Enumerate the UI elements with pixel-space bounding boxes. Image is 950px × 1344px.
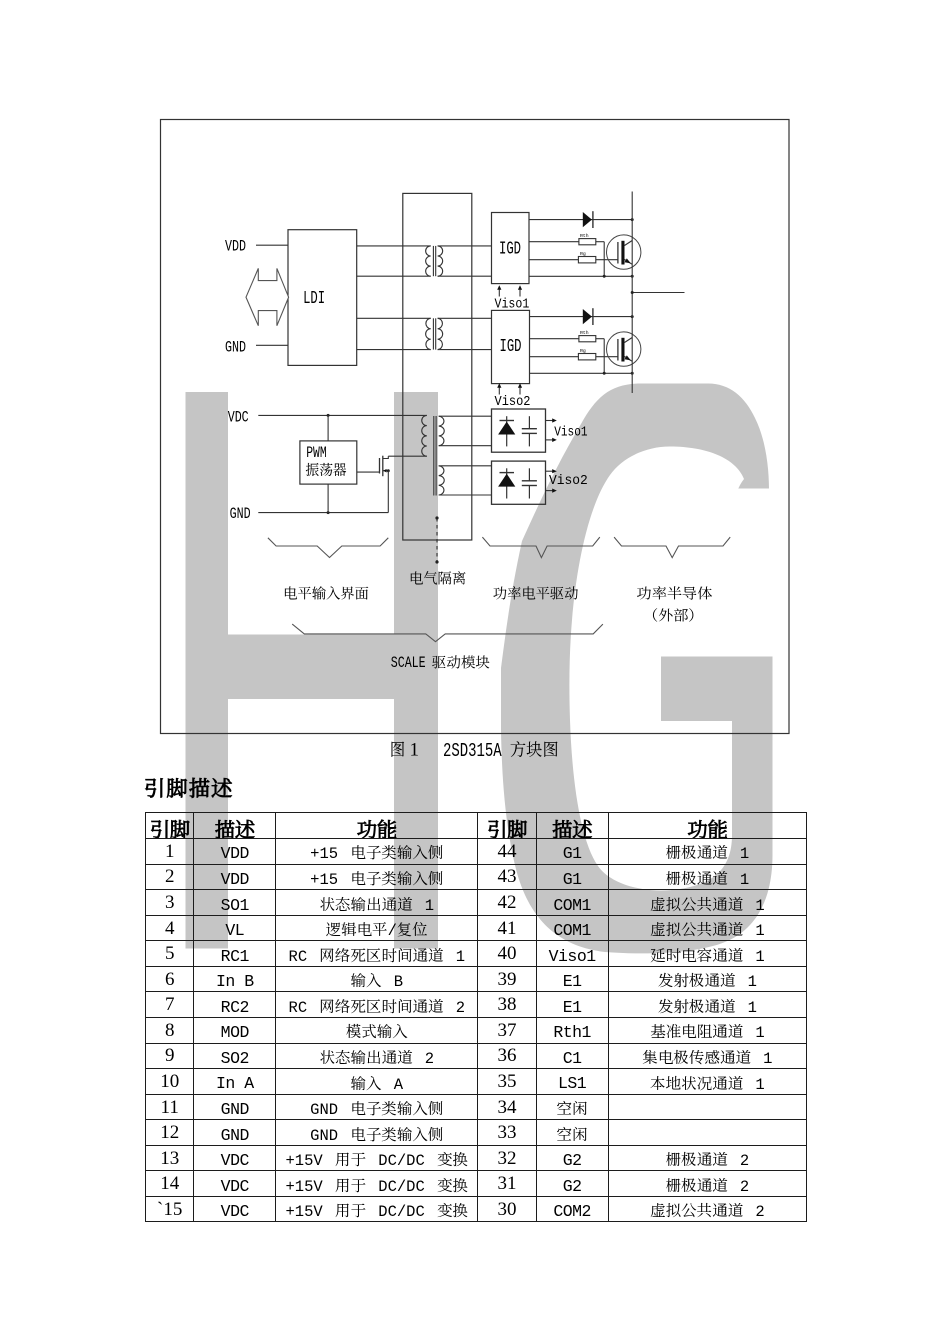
svg-text:2SD315A: 2SD315A <box>443 740 502 762</box>
svg-text:SCALE: SCALE <box>391 654 426 672</box>
svg-text:Rg: Rg <box>580 348 586 354</box>
svg-text:GND: GND <box>225 338 246 356</box>
svg-text:Viso1: Viso1 <box>495 297 530 313</box>
svg-text:Rth: Rth <box>580 330 589 336</box>
svg-text:Viso2: Viso2 <box>549 473 588 489</box>
svg-text:Rg: Rg <box>580 251 586 257</box>
svg-text:（外部）: （外部） <box>643 605 703 626</box>
svg-text:Rth: Rth <box>580 233 589 239</box>
svg-text:电气隔离: 电气隔离 <box>409 568 467 589</box>
svg-text:振荡器: 振荡器 <box>306 459 347 480</box>
svg-text:电平输入界面: 电平输入界面 <box>283 583 370 604</box>
svg-text:LDI: LDI <box>303 288 325 309</box>
svg-text:1: 1 <box>410 740 420 761</box>
svg-text:功率半导体: 功率半导体 <box>636 583 712 604</box>
svg-text:VDC: VDC <box>228 409 249 427</box>
svg-text:驱动模块: 驱动模块 <box>432 652 491 673</box>
svg-text:GND: GND <box>230 505 251 523</box>
svg-text:Viso2: Viso2 <box>495 394 531 410</box>
svg-text:功率电平驱动: 功率电平驱动 <box>493 583 579 604</box>
svg-text:Viso1: Viso1 <box>554 424 587 440</box>
svg-text:图: 图 <box>390 735 406 760</box>
svg-text:方块图: 方块图 <box>510 735 559 760</box>
svg-text:IGD: IGD <box>499 238 521 259</box>
svg-text:IGD: IGD <box>500 336 522 357</box>
svg-text:VDD: VDD <box>225 237 246 255</box>
